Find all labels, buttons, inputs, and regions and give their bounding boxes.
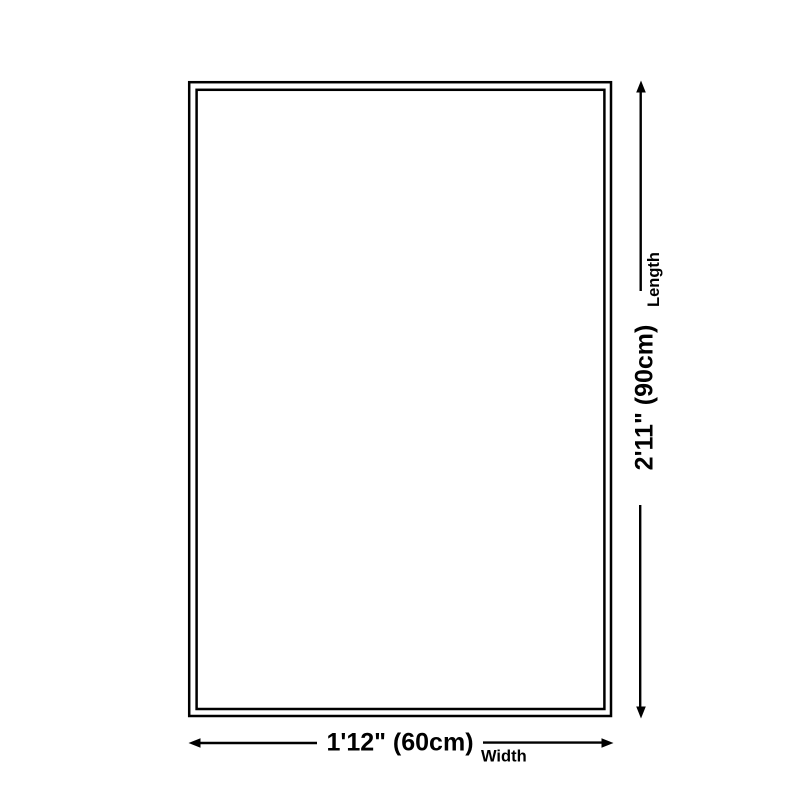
svg-text:1'12" (60cm): 1'12" (60cm)	[326, 729, 473, 757]
svg-text:Width: Width	[481, 748, 527, 766]
svg-text:2'11" (90cm): 2'11" (90cm)	[631, 325, 659, 471]
svg-text:Length: Length	[645, 252, 663, 307]
